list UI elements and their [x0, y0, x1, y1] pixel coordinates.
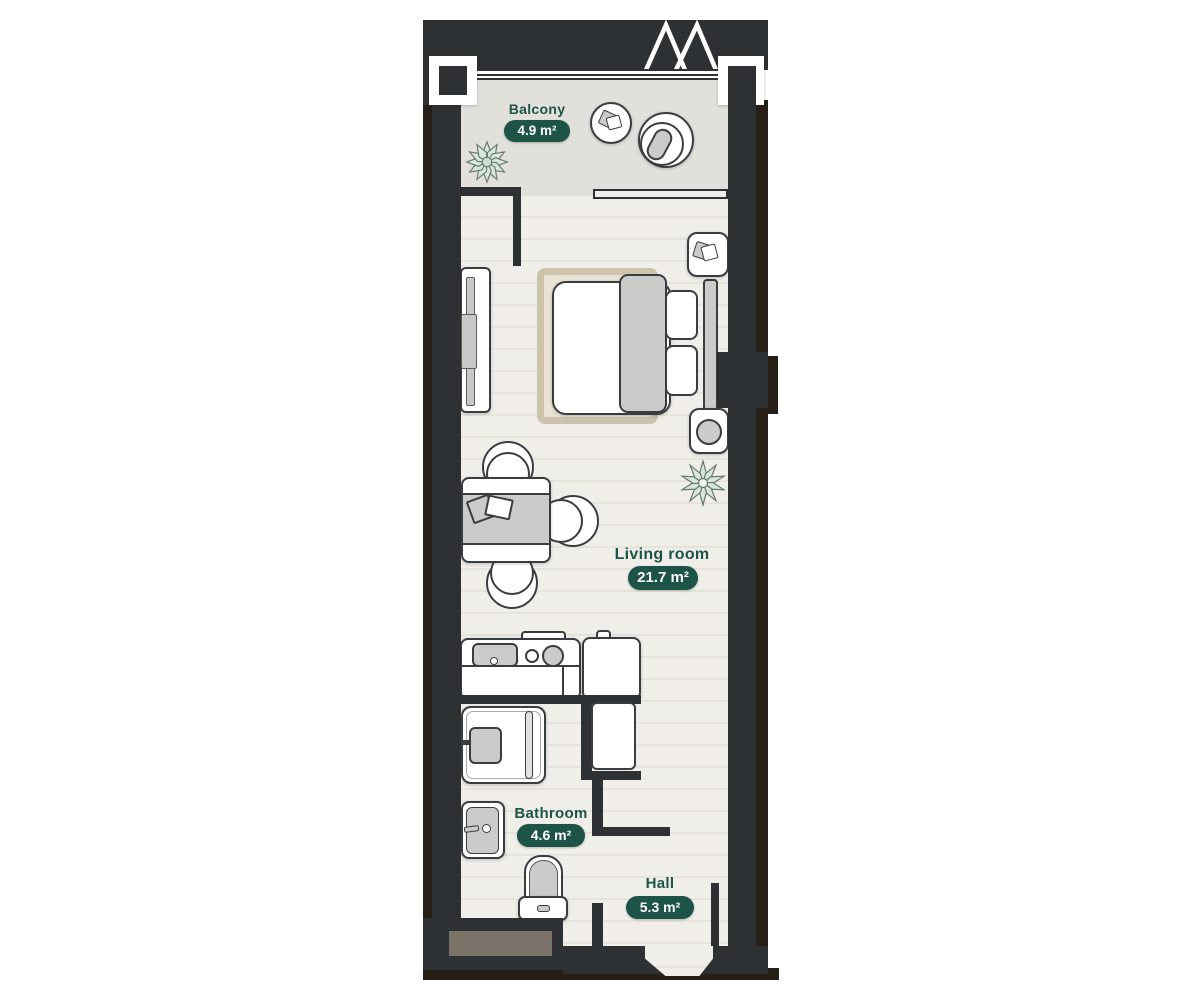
wall-entry-stub-left — [592, 903, 603, 947]
wall-right-pillar-shadow — [768, 356, 778, 414]
zigzag-marker-icon — [640, 20, 720, 70]
balcony-railing — [477, 74, 718, 76]
stove-burner-icon — [525, 649, 539, 663]
room-label-living: Living room — [602, 546, 722, 564]
balcony-column-core — [439, 66, 467, 95]
bed-blanket — [619, 274, 667, 413]
area-badge-hall: 5.3 m² — [626, 896, 694, 919]
balcony-sliding-door — [593, 189, 728, 199]
wall-hall-stub-right — [711, 883, 719, 947]
area-badge-bathroom: 4.6 m² — [517, 824, 585, 847]
wall-right-shadow — [756, 100, 768, 980]
wall-left-shadow — [423, 105, 432, 972]
wall-balcony-divider-stub — [513, 187, 521, 266]
balcony-railing — [477, 69, 718, 71]
balcony-railing — [477, 78, 718, 80]
table-lamp-icon — [696, 419, 722, 445]
sink-faucet-icon — [490, 657, 498, 665]
wardrobe-door-handle — [461, 314, 477, 369]
wall-right — [728, 56, 756, 972]
wall-niche-bottom — [592, 827, 670, 836]
service-shaft — [449, 931, 552, 956]
room-label-bathroom: Bathroom — [491, 805, 611, 822]
shower-seat — [469, 727, 502, 764]
wall-balcony-divider — [457, 187, 521, 196]
room-label-balcony: Balcony — [477, 101, 597, 117]
stove-burner-icon — [542, 645, 564, 667]
shower-glass — [525, 711, 533, 779]
bathroom-door — [591, 702, 636, 770]
toilet-flush-button — [537, 905, 550, 912]
balcony-column-core — [728, 66, 756, 105]
wall-right-pillar — [717, 352, 768, 408]
plant-icon — [679, 459, 727, 507]
plant-icon — [464, 139, 510, 185]
area-badge-living: 21.7 m² — [628, 566, 698, 590]
bed-pillow — [665, 345, 698, 396]
counter-divider — [562, 667, 564, 698]
floor-plan: Balcony 4.9 m² Living room 21.7 m² Bathr… — [0, 0, 1200, 1000]
room-label-hall: Hall — [600, 875, 720, 892]
fridge — [582, 637, 641, 700]
washbasin-faucet-icon — [482, 824, 491, 833]
area-badge-balcony: 4.9 m² — [504, 120, 570, 142]
bed-headboard — [703, 279, 718, 411]
toilet-bowl-inner — [529, 860, 558, 899]
bed-pillow — [665, 290, 698, 340]
